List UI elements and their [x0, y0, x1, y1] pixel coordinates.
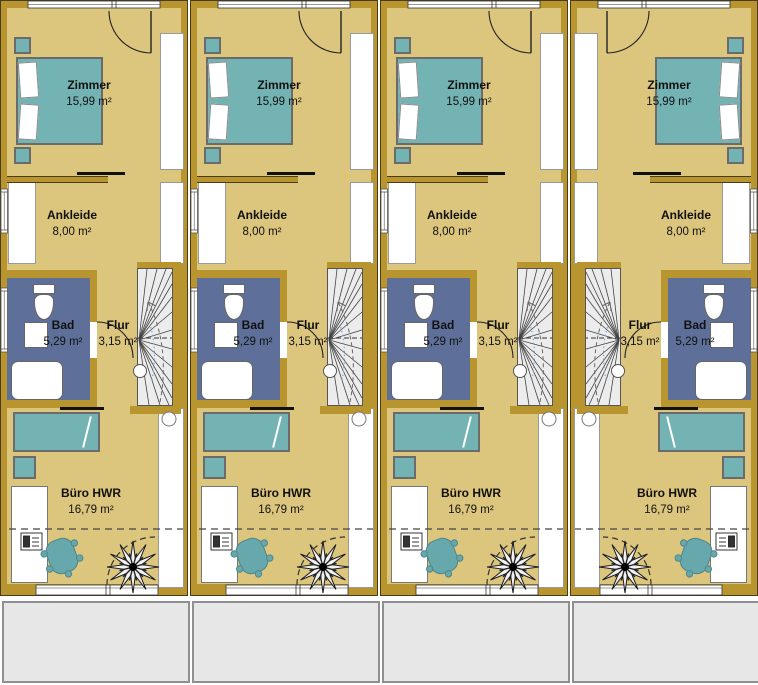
nightstand: [204, 37, 221, 54]
stair-wall-right: [577, 268, 585, 406]
bath-wall-right-upper: [280, 278, 287, 322]
pillow: [398, 61, 419, 98]
unit-building: Zimmer 15,99 m² Ankleide 8,00 m² Bad 5,2…: [190, 0, 378, 596]
spiral-staircase: [137, 268, 173, 406]
wardrobe-niche-ankleide-left: [8, 182, 36, 264]
spiral-staircase: [327, 268, 363, 406]
pillow: [18, 61, 39, 98]
bath-door-opening: [661, 322, 668, 358]
pillow: [719, 61, 740, 98]
wardrobe-niche-ankleide-right: [574, 182, 598, 264]
unit-building: Zimmer 15,99 m² Ankleide 8,00 m² Bad 5,2…: [380, 0, 568, 596]
sliding-door-zimmer: [267, 172, 315, 175]
stair-wall-bottom: [320, 406, 371, 414]
wardrobe-niche-zimmer: [160, 33, 184, 170]
pillow: [208, 61, 229, 98]
bath-wall-top: [197, 270, 287, 278]
sink: [24, 322, 48, 348]
bathtub: [11, 361, 63, 400]
wardrobe-niche-zimmer: [540, 33, 564, 170]
partition-wall: [387, 176, 488, 183]
floor-plan: Zimmer 15,99 m² Ankleide 8,00 m² Bad 5,2…: [0, 0, 758, 685]
partition-wall: [650, 176, 751, 183]
terrace: [382, 601, 570, 683]
bath-wall-right-lower: [90, 358, 97, 400]
bathtub: [695, 361, 747, 400]
unit-2: Zimmer 15,99 m² Ankleide 8,00 m² Bad 5,2…: [190, 0, 378, 685]
partition-wall: [7, 176, 108, 183]
nightstand: [727, 147, 744, 164]
unit-3: Zimmer 15,99 m² Ankleide 8,00 m² Bad 5,2…: [380, 0, 568, 685]
installation-shaft: [348, 408, 374, 588]
stair-wall-right: [553, 268, 561, 406]
unit-building: Zimmer 15,99 m² Ankleide 8,00 m² Bad 5,2…: [0, 0, 188, 596]
wardrobe-niche-zimmer: [350, 33, 374, 170]
pillow: [398, 103, 419, 140]
desk: [710, 486, 747, 583]
desk: [201, 486, 238, 583]
desk: [391, 486, 428, 583]
bathtub: [201, 361, 253, 400]
sink: [214, 322, 238, 348]
pillow: [719, 103, 740, 140]
nightstand: [393, 456, 416, 479]
wardrobe-niche-ankleide-right: [160, 182, 184, 264]
unit-4: Zimmer 15,99 m² Ankleide 8,00 m² Bad 5,2…: [570, 0, 758, 685]
toilet-tank: [413, 284, 435, 294]
stair-wall-right: [173, 268, 181, 406]
stair-wall-bottom: [577, 406, 628, 414]
bath-wall-top: [387, 270, 477, 278]
wardrobe-niche-ankleide-left: [198, 182, 226, 264]
bath-wall-top: [7, 270, 97, 278]
stair-wall-right: [363, 268, 371, 406]
unit-building: Zimmer 15,99 m² Ankleide 8,00 m² Bad 5,2…: [570, 0, 758, 596]
sliding-door-zimmer: [77, 172, 125, 175]
spiral-staircase: [585, 268, 621, 406]
sliding-door-zimmer: [457, 172, 505, 175]
bath-wall-right-lower: [661, 358, 668, 400]
sliding-door-buero: [250, 407, 294, 410]
sliding-door-zimmer: [633, 172, 681, 175]
stair-wall-bottom: [130, 406, 181, 414]
installation-shaft: [158, 408, 184, 588]
bath-wall-right-lower: [280, 358, 287, 400]
stair-wall-bottom: [510, 406, 561, 414]
installation-shaft: [538, 408, 564, 588]
wardrobe-niche-zimmer: [574, 33, 598, 170]
nightstand: [722, 456, 745, 479]
wardrobe-niche-ankleide-left: [722, 182, 750, 264]
nightstand: [204, 147, 221, 164]
terrace: [2, 601, 190, 683]
spiral-staircase: [517, 268, 553, 406]
bath-wall-right-upper: [661, 278, 668, 322]
nightstand: [203, 456, 226, 479]
nightstand: [394, 37, 411, 54]
pillow: [208, 103, 229, 140]
bath-wall-right-upper: [90, 278, 97, 322]
bath-wall-right-lower: [470, 358, 477, 400]
toilet-tank: [33, 284, 55, 294]
nightstand: [394, 147, 411, 164]
terrace: [572, 601, 758, 683]
unit-1: Zimmer 15,99 m² Ankleide 8,00 m² Bad 5,2…: [0, 0, 188, 685]
pillow: [18, 103, 39, 140]
sink: [710, 322, 734, 348]
bath-door-opening: [90, 322, 97, 358]
wardrobe-niche-ankleide-left: [388, 182, 416, 264]
sliding-door-buero: [440, 407, 484, 410]
sink: [404, 322, 428, 348]
installation-shaft: [574, 408, 600, 588]
sliding-door-buero: [654, 407, 698, 410]
terrace: [192, 601, 380, 683]
desk: [11, 486, 48, 583]
nightstand: [14, 37, 31, 54]
wardrobe-niche-ankleide-right: [540, 182, 564, 264]
nightstand: [14, 147, 31, 164]
bath-wall-top: [661, 270, 751, 278]
nightstand: [727, 37, 744, 54]
partition-wall: [197, 176, 298, 183]
bathtub: [391, 361, 443, 400]
bath-door-opening: [470, 322, 477, 358]
toilet-tank: [703, 284, 725, 294]
wardrobe-niche-ankleide-right: [350, 182, 374, 264]
nightstand: [13, 456, 36, 479]
sliding-door-buero: [60, 407, 104, 410]
bath-wall-right-upper: [470, 278, 477, 322]
toilet-tank: [223, 284, 245, 294]
bath-door-opening: [280, 322, 287, 358]
